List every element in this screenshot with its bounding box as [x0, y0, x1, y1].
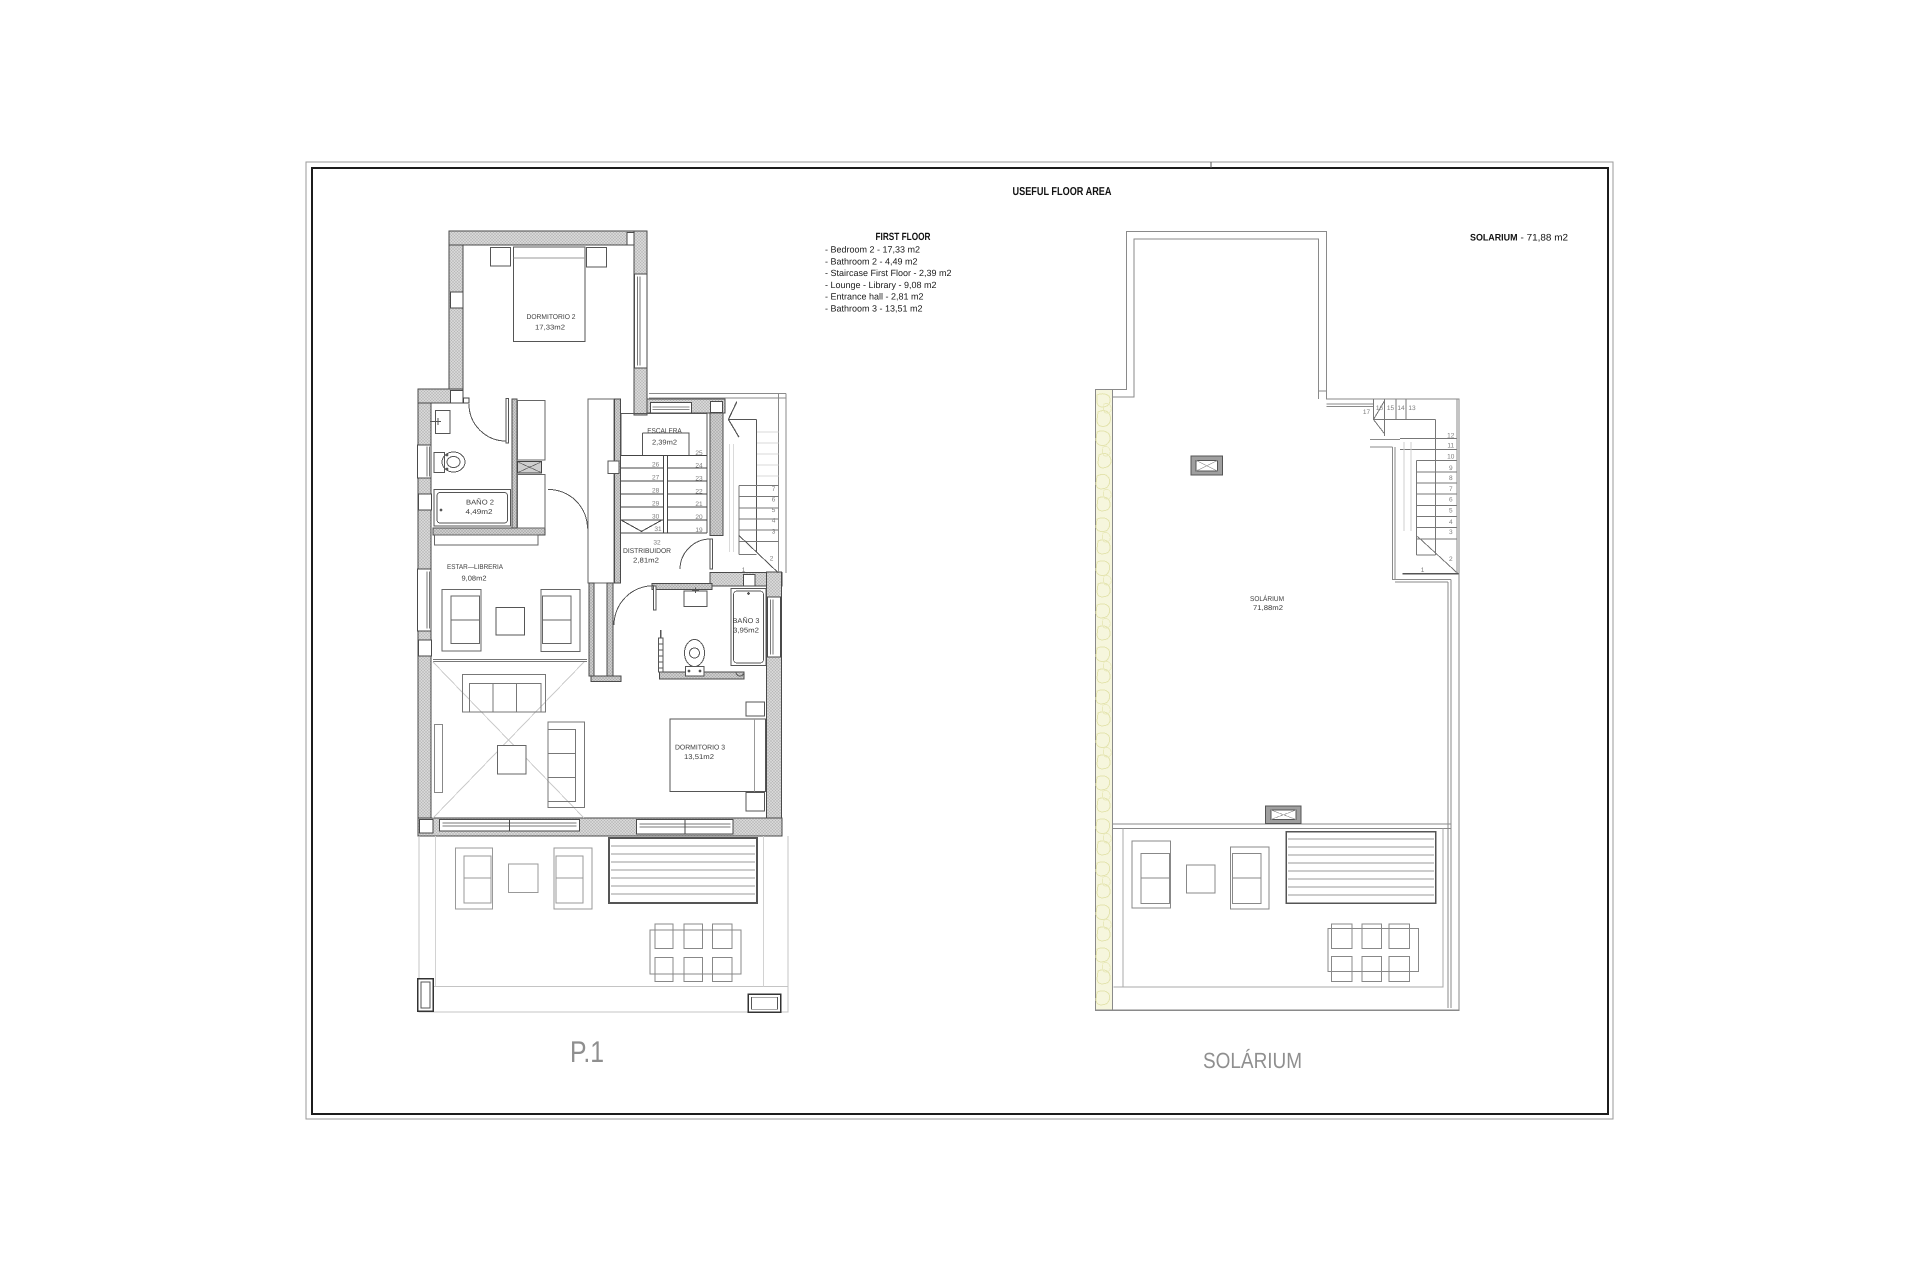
svg-text:4: 4 — [1449, 519, 1453, 526]
svg-text:- Staircase First Floor - 2,39: - Staircase First Floor - 2,39 m2 — [825, 268, 952, 278]
svg-text:SOLÁRIUM: SOLÁRIUM — [1250, 594, 1284, 603]
svg-text:7: 7 — [772, 486, 776, 493]
svg-text:4: 4 — [772, 517, 776, 524]
svg-text:10: 10 — [1447, 454, 1455, 461]
svg-text:2,39m2: 2,39m2 — [652, 440, 677, 447]
svg-text:9: 9 — [1449, 465, 1453, 472]
svg-text:26: 26 — [652, 462, 660, 469]
svg-text:5: 5 — [772, 507, 776, 514]
svg-text:6: 6 — [772, 497, 776, 504]
svg-text:2: 2 — [1449, 556, 1453, 563]
svg-text:3: 3 — [1449, 529, 1453, 536]
svg-text:7: 7 — [1449, 486, 1453, 493]
svg-text:2,81m2: 2,81m2 — [633, 558, 659, 565]
svg-text:ESTAR—LIBRERIA: ESTAR—LIBRERIA — [447, 564, 503, 571]
svg-text:DORMITORIO 3: DORMITORIO 3 — [675, 745, 725, 752]
svg-text:14: 14 — [1397, 405, 1405, 412]
svg-text:28: 28 — [652, 488, 660, 495]
svg-text:31: 31 — [654, 526, 662, 533]
svg-text:5: 5 — [1449, 508, 1453, 515]
svg-text:3,95m2: 3,95m2 — [733, 628, 759, 635]
svg-text:13,51m2: 13,51m2 — [684, 754, 714, 761]
svg-text:BAÑO 3: BAÑO 3 — [733, 616, 760, 625]
svg-text:6: 6 — [1449, 497, 1453, 504]
svg-text:17: 17 — [1363, 409, 1371, 416]
svg-text:DISTRIBUIDOR: DISTRIBUIDOR — [623, 548, 671, 555]
svg-text:23: 23 — [695, 475, 703, 482]
svg-text:15: 15 — [1387, 405, 1395, 412]
svg-text:- Lounge - Library - 9,08 m2: - Lounge - Library - 9,08 m2 — [825, 280, 937, 290]
svg-text:8: 8 — [1449, 475, 1453, 482]
svg-text:FIRST FLOOR: FIRST FLOOR — [876, 231, 931, 243]
svg-text:- Bathroom 2 - 4,49 m2: - Bathroom 2 - 4,49 m2 — [825, 256, 918, 266]
svg-text:71,88m2: 71,88m2 — [1253, 605, 1283, 612]
svg-text:BAÑO 2: BAÑO 2 — [466, 498, 494, 507]
svg-text:24: 24 — [695, 463, 703, 470]
svg-text:- 71,88 m2: - 71,88 m2 — [1521, 233, 1569, 244]
svg-text:P.1: P.1 — [570, 1036, 604, 1069]
svg-text:3: 3 — [772, 529, 776, 536]
svg-text:20: 20 — [695, 514, 703, 521]
svg-text:19: 19 — [695, 527, 703, 534]
svg-text:ESCALERA: ESCALERA — [647, 428, 682, 435]
svg-text:- Entrance hall - 2,81 m2: - Entrance hall - 2,81 m2 — [825, 292, 924, 302]
svg-text:1: 1 — [742, 567, 746, 574]
svg-text:11: 11 — [1447, 442, 1454, 449]
svg-text:USEFUL FLOOR AREA: USEFUL FLOOR AREA — [1013, 186, 1112, 198]
svg-text:- Bedroom 2 - 17,33 m2: - Bedroom 2 - 17,33 m2 — [825, 245, 920, 255]
svg-text:- Bathroom 3 - 13,51 m2: - Bathroom 3 - 13,51 m2 — [825, 304, 923, 314]
svg-text:22: 22 — [695, 488, 703, 495]
svg-text:32: 32 — [653, 540, 661, 547]
svg-text:21: 21 — [695, 501, 703, 508]
svg-text:13: 13 — [1408, 405, 1416, 412]
svg-text:16: 16 — [1376, 405, 1384, 412]
svg-text:27: 27 — [652, 475, 660, 482]
svg-text:12: 12 — [1447, 433, 1455, 440]
svg-text:DORMITORIO 2: DORMITORIO 2 — [527, 314, 576, 321]
svg-text:2: 2 — [770, 556, 774, 563]
svg-text:SOLÁRIUM: SOLÁRIUM — [1203, 1048, 1302, 1073]
svg-text:30: 30 — [652, 513, 660, 520]
svg-text:25: 25 — [695, 450, 703, 457]
svg-text:17,33m2: 17,33m2 — [535, 325, 565, 332]
svg-text:SOLARIUM: SOLARIUM — [1470, 233, 1518, 244]
svg-text:4,49m2: 4,49m2 — [466, 509, 493, 516]
svg-text:29: 29 — [652, 501, 660, 508]
svg-text:1: 1 — [1421, 567, 1425, 574]
svg-text:9,08m2: 9,08m2 — [462, 576, 487, 583]
